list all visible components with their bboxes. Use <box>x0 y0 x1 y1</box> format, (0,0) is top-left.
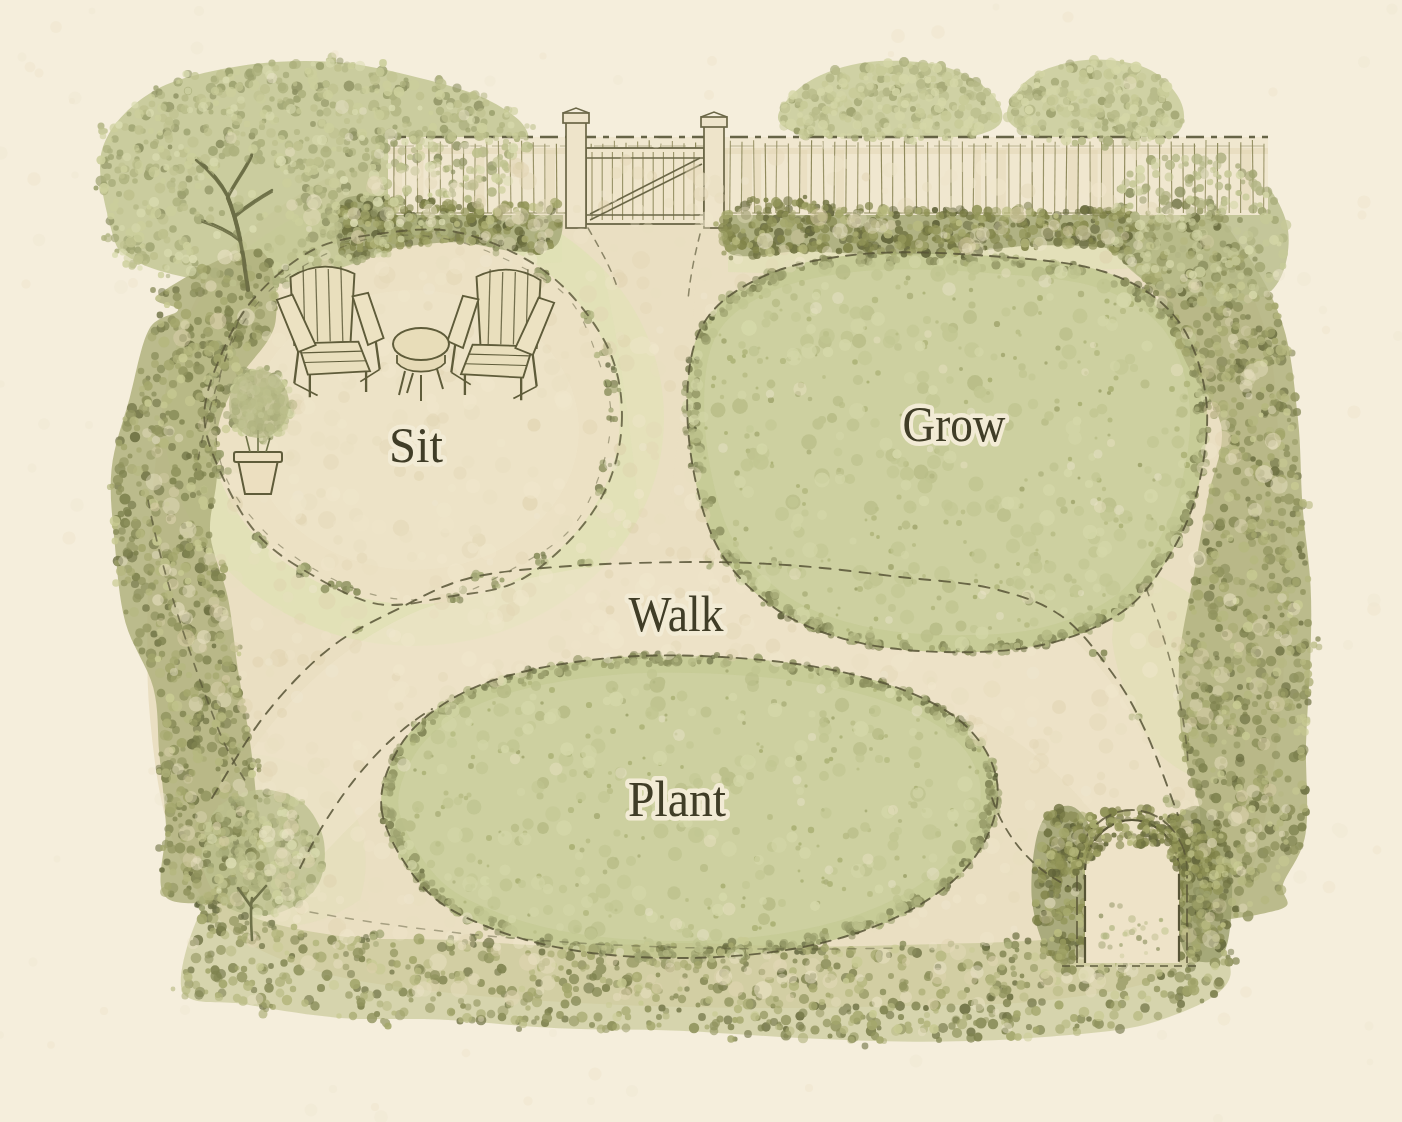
svg-text:Walk: Walk <box>629 586 724 642</box>
svg-text:Grow: Grow <box>903 396 1006 452</box>
svg-text:Sit: Sit <box>389 417 443 473</box>
svg-text:Plant: Plant <box>628 771 726 827</box>
